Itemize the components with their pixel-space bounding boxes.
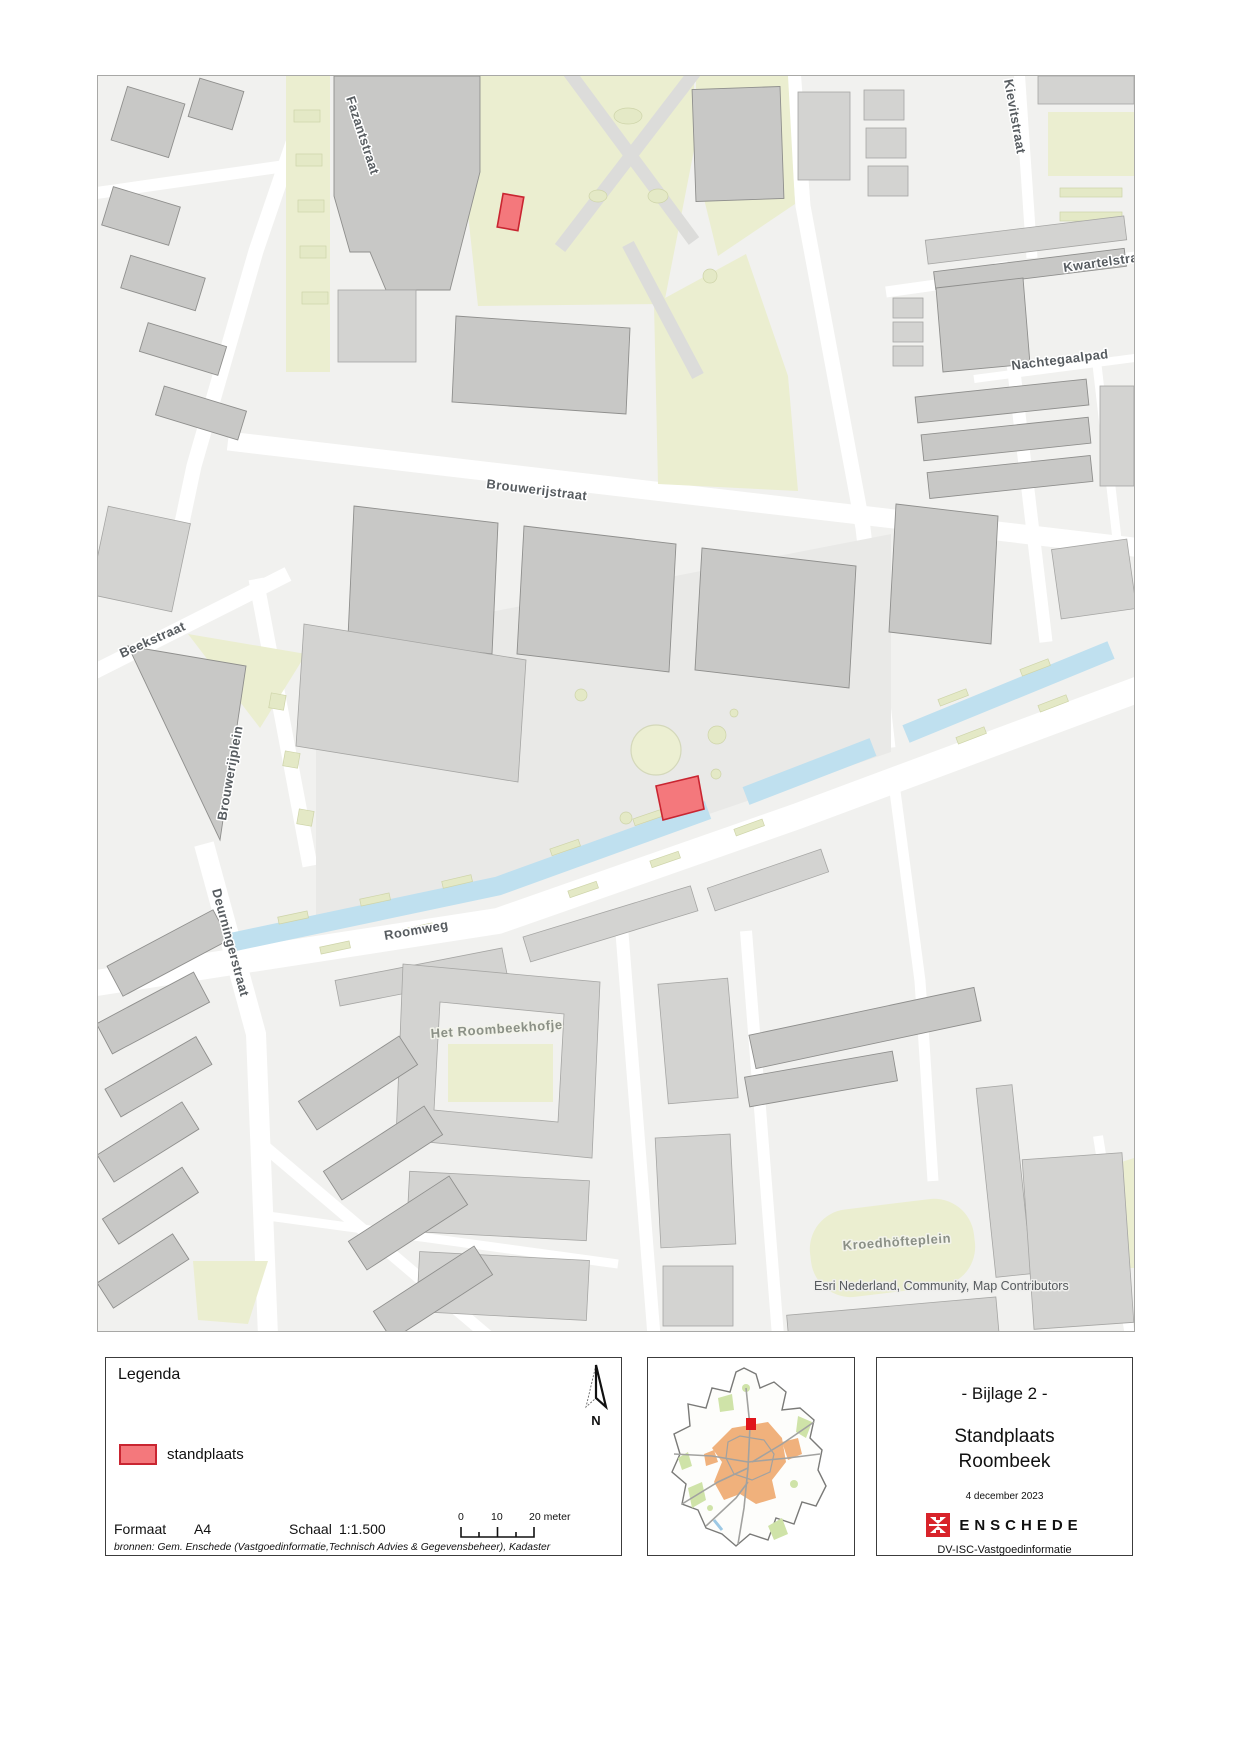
map-attribution: Esri Nederland, Community, Map Contribut… bbox=[814, 1279, 1069, 1293]
legend-panel: Legenda N standplaats Formaat A4 Schaal … bbox=[105, 1357, 622, 1556]
format-label: Formaat bbox=[114, 1521, 166, 1537]
north-arrow: N bbox=[577, 1363, 615, 1429]
title-block: - Bijlage 2 - Standplaats Roombeek 4 dec… bbox=[876, 1357, 1133, 1556]
standplaats-swatch bbox=[119, 1444, 157, 1465]
map-title: Standplaats Roombeek bbox=[877, 1424, 1132, 1474]
scale-value: 1:1.500 bbox=[339, 1521, 386, 1537]
format-value: A4 bbox=[194, 1521, 211, 1537]
enschede-logo-icon bbox=[926, 1513, 950, 1537]
map-document-page: { "map": { "streets": { "fazantstraat": … bbox=[0, 0, 1240, 1754]
department-label: DV-ISC-Vastgoedinformatie bbox=[877, 1544, 1132, 1556]
scalebar-tick-0: 0 bbox=[458, 1511, 464, 1523]
scalebar-tick-10: 10 bbox=[491, 1511, 503, 1523]
north-label: N bbox=[577, 1413, 615, 1428]
org-logo-row: ENSCHEDE bbox=[877, 1513, 1132, 1537]
appendix-label: - Bijlage 2 - bbox=[877, 1384, 1132, 1404]
overview-inset-panel bbox=[647, 1357, 855, 1556]
standplaats-label: standplaats bbox=[167, 1446, 244, 1463]
map-canvas: Fazantstraat Kievitstraat Kwartelstraat … bbox=[97, 75, 1135, 1332]
north-arrow-icon bbox=[579, 1363, 613, 1411]
map-svg: Fazantstraat Kievitstraat Kwartelstraat … bbox=[98, 76, 1134, 1331]
legend-item-standplaats: standplaats bbox=[119, 1444, 244, 1465]
overview-inset-map bbox=[648, 1358, 854, 1555]
sources-note: bronnen: Gem. Enschede (Vastgoedinformat… bbox=[114, 1542, 550, 1553]
scalebar bbox=[458, 1525, 568, 1539]
map-title-line2: Roombeek bbox=[877, 1449, 1132, 1474]
scalebar-tick-20: 20 meter bbox=[529, 1511, 570, 1523]
org-name: ENSCHEDE bbox=[959, 1517, 1082, 1534]
legend-title: Legenda bbox=[118, 1366, 180, 1384]
map-title-line1: Standplaats bbox=[877, 1424, 1132, 1449]
inset-location-marker bbox=[746, 1418, 756, 1430]
scale-label: Schaal bbox=[289, 1521, 332, 1537]
map-date: 4 december 2023 bbox=[877, 1491, 1132, 1502]
